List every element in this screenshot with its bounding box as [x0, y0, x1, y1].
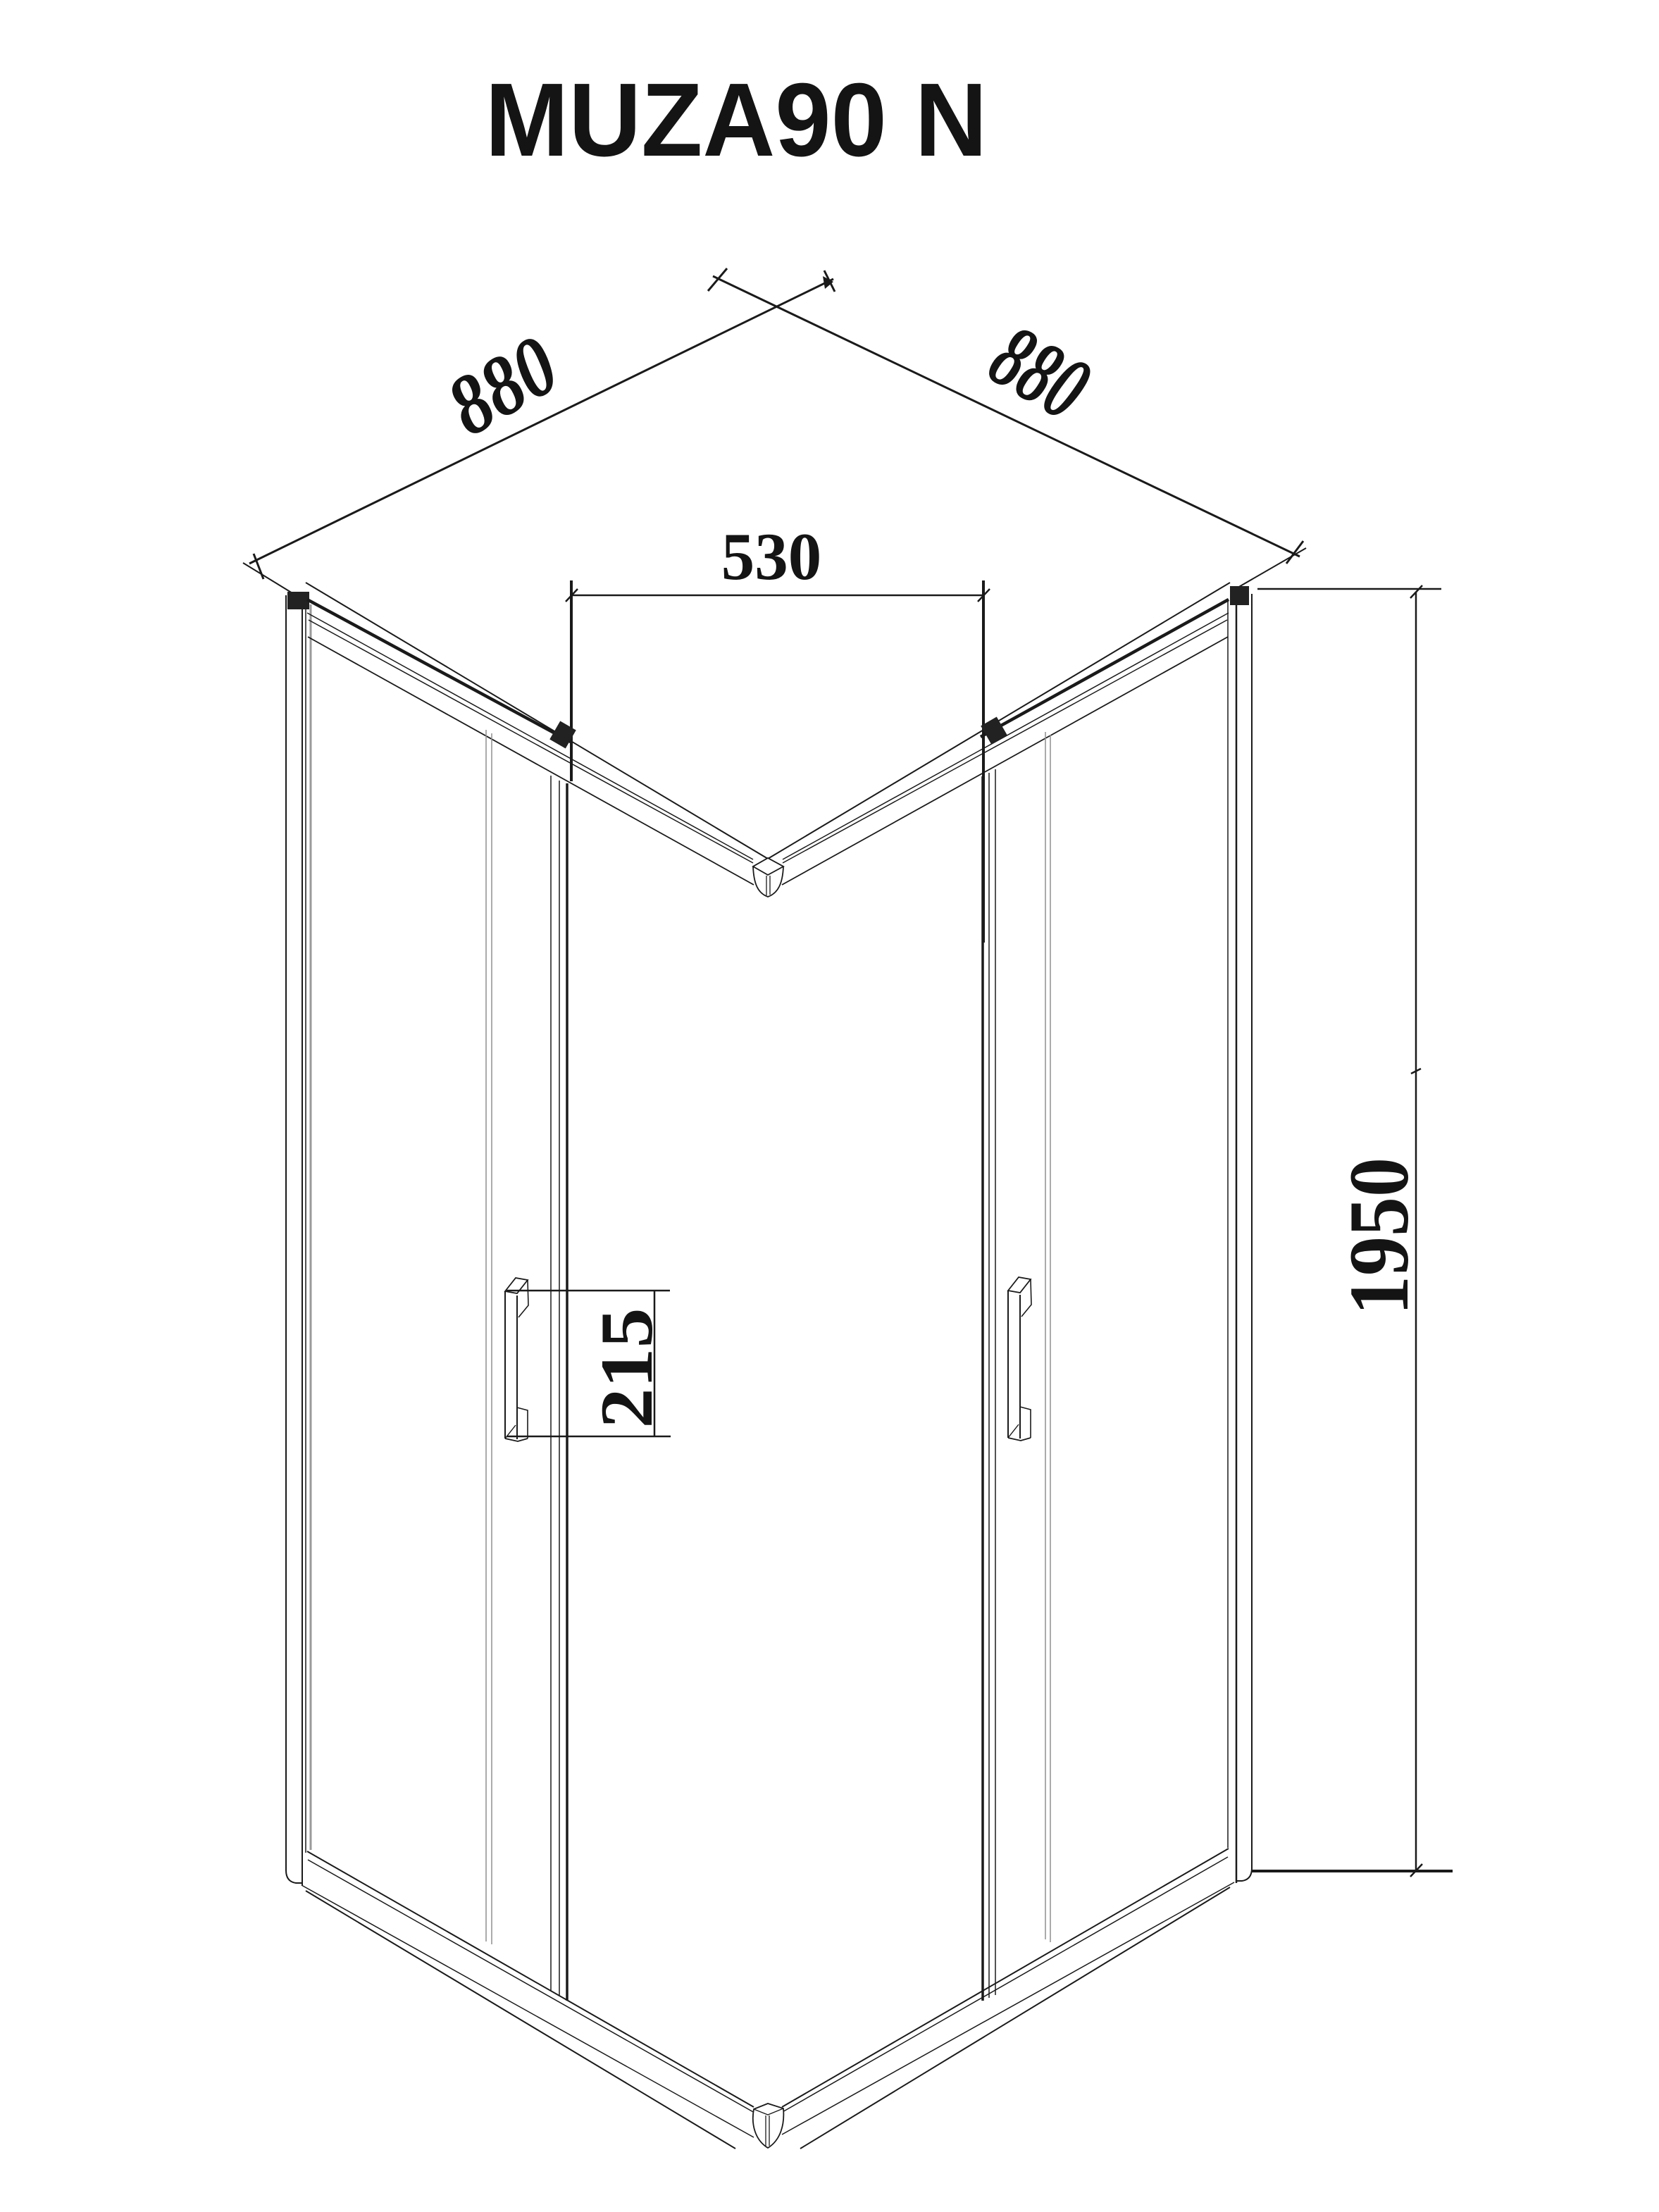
svg-text:MUZA90 N: MUZA90 N — [485, 62, 988, 178]
svg-text:530: 530 — [721, 519, 822, 594]
svg-text:1950: 1950 — [1332, 1157, 1427, 1315]
svg-text:215: 215 — [585, 1308, 668, 1429]
